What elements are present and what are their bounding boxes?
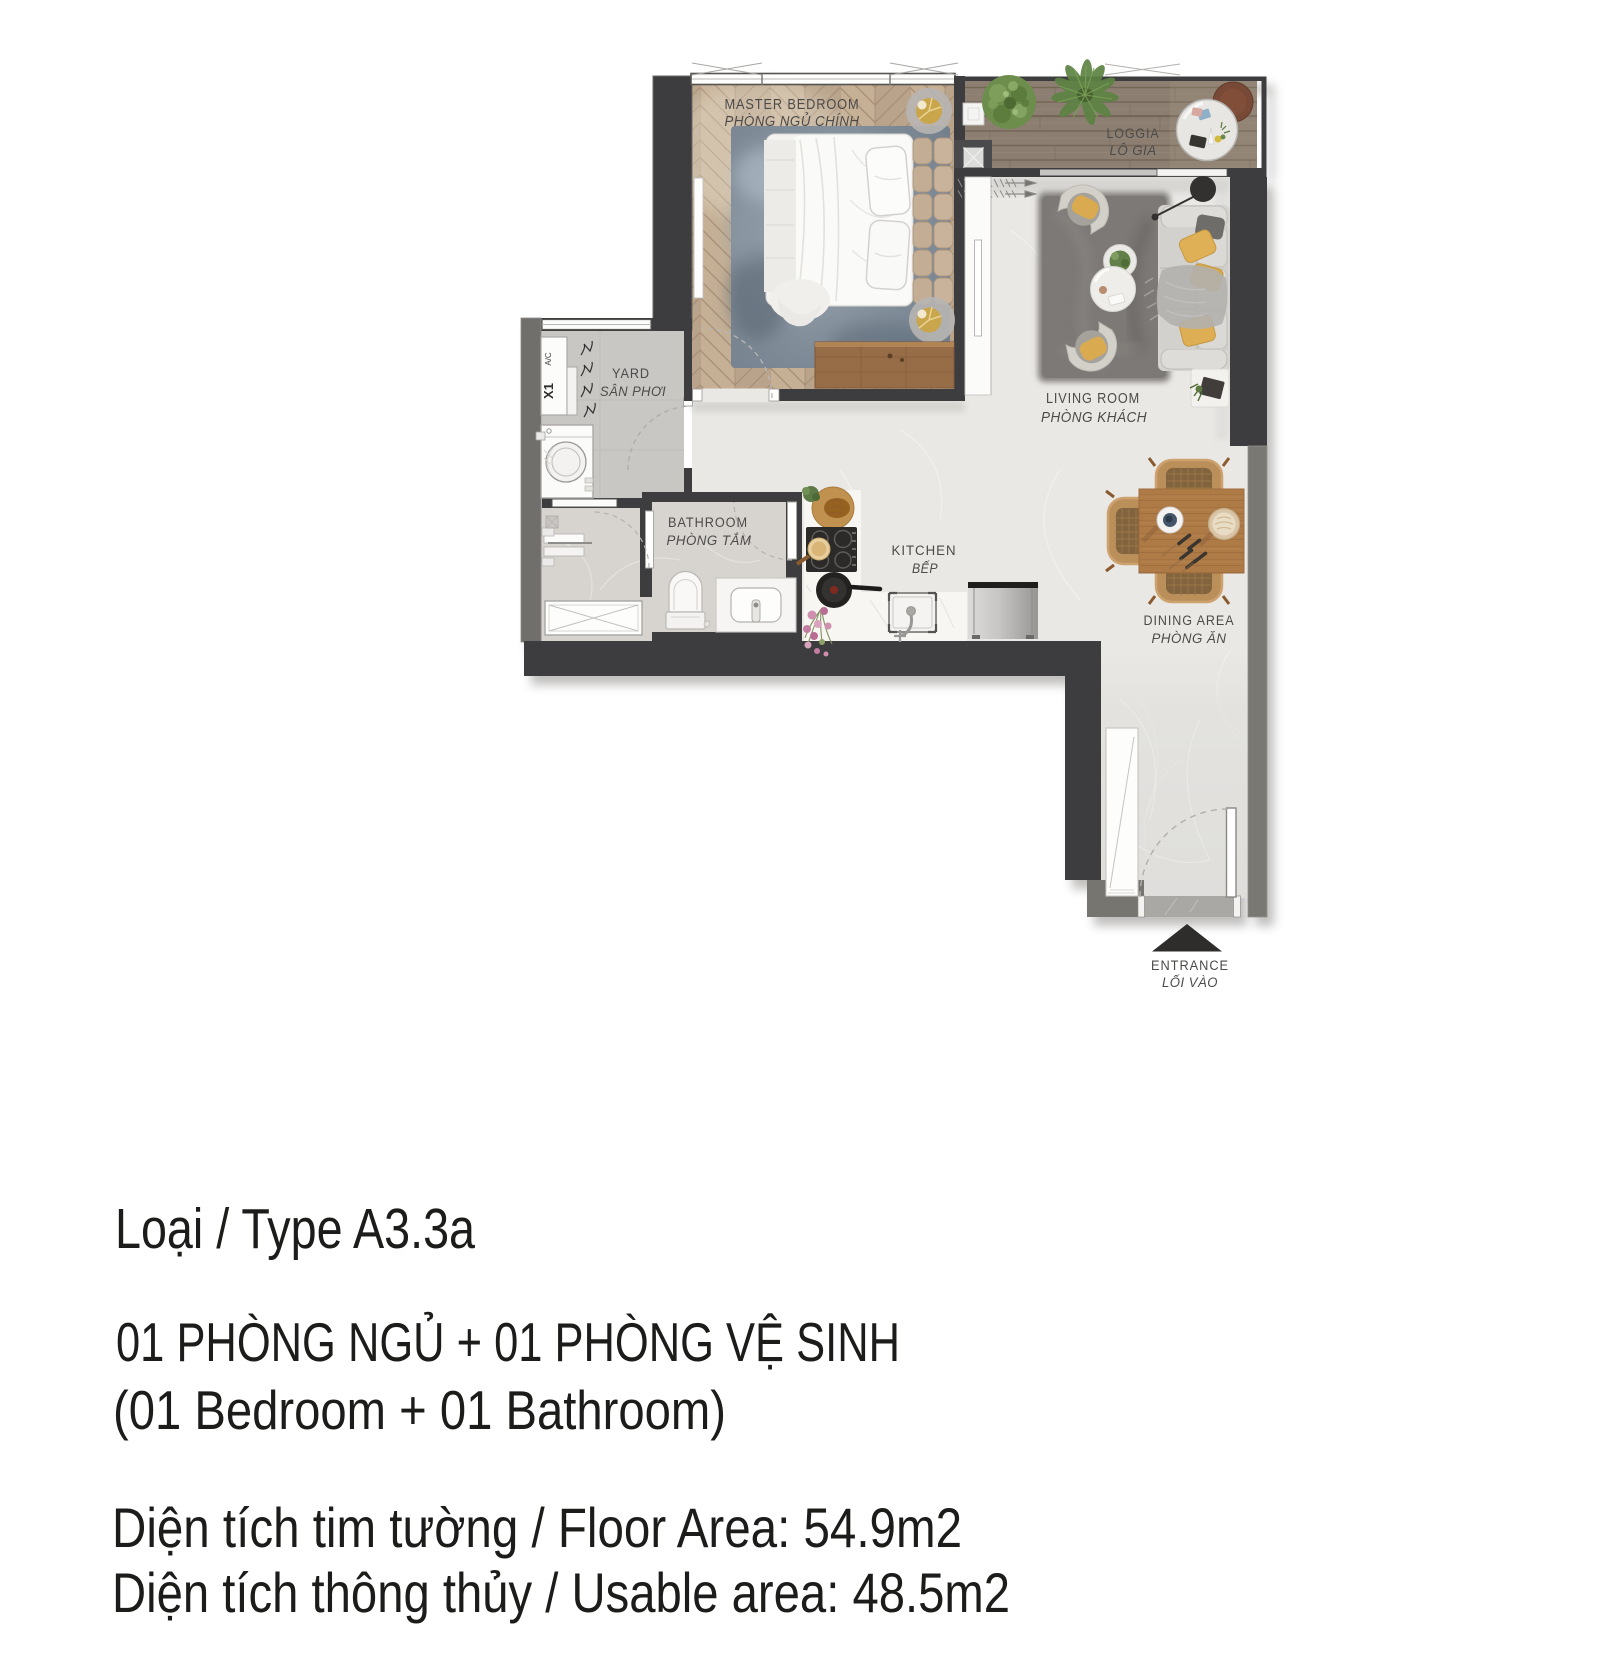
svg-text:PHÒNG ĂN: PHÒNG ĂN xyxy=(1152,631,1227,646)
svg-text:X1: X1 xyxy=(541,383,556,399)
svg-text:BATHROOM: BATHROOM xyxy=(668,515,748,530)
svg-text:BẾP: BẾP xyxy=(912,561,938,576)
svg-text:PHÒNG KHÁCH: PHÒNG KHÁCH xyxy=(1041,409,1147,426)
svg-text:01 PHÒNG NGỦ + 01 PHÒNG VỆ SIN: 01 PHÒNG NGỦ + 01 PHÒNG VỆ SINH xyxy=(116,1311,900,1373)
svg-text:Loại / Type A3.3a: Loại / Type A3.3a xyxy=(115,1197,475,1261)
svg-text:SÂN PHƠI: SÂN PHƠI xyxy=(600,383,666,399)
svg-text:LOGGIA: LOGGIA xyxy=(1107,125,1160,141)
svg-text:(01 Bedroom + 01 Bathroom): (01 Bedroom + 01 Bathroom) xyxy=(113,1379,726,1441)
svg-text:LỐI VÀO: LỐI VÀO xyxy=(1162,975,1218,990)
svg-text:YARD: YARD xyxy=(612,365,650,381)
svg-text:ENTRANCE: ENTRANCE xyxy=(1151,958,1229,973)
svg-text:PHÒNG NGỦ CHÍNH: PHÒNG NGỦ CHÍNH xyxy=(725,112,860,130)
svg-text:A/C: A/C xyxy=(544,352,553,366)
svg-text:LIVING ROOM: LIVING ROOM xyxy=(1046,391,1140,407)
svg-text:PHÒNG TẮM: PHÒNG TẮM xyxy=(667,533,752,548)
svg-text:KITCHEN: KITCHEN xyxy=(892,543,957,558)
svg-text:MASTER BEDROOM: MASTER BEDROOM xyxy=(725,97,860,113)
svg-text:LÔ GIA: LÔ GIA xyxy=(1110,142,1157,158)
svg-text:Diện tích thông thủy / Usable: Diện tích thông thủy / Usable area: 48.5… xyxy=(112,1561,1010,1624)
svg-text:Diện tích tim tường / Floor Ar: Diện tích tim tường / Floor Area: 54.9m2 xyxy=(112,1496,962,1559)
svg-text:DINING AREA: DINING AREA xyxy=(1144,613,1235,628)
